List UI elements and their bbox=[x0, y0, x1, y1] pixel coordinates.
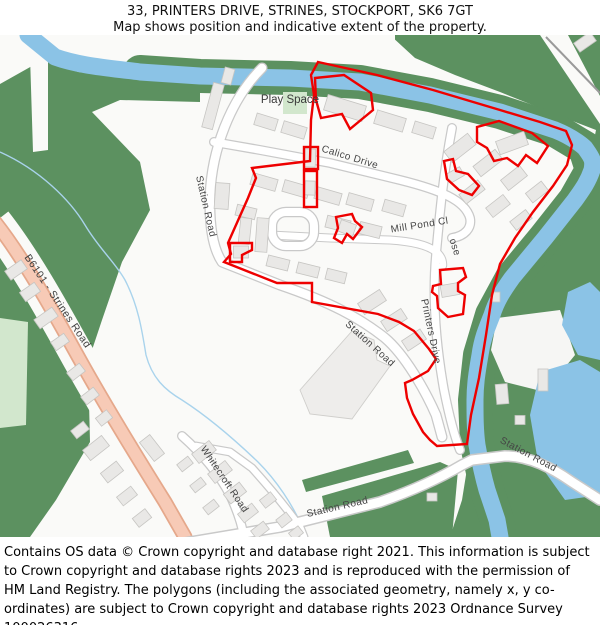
copyright-footer: Contains OS data © Crown copyright and d… bbox=[0, 537, 600, 625]
play-space-label: Play Space bbox=[261, 94, 319, 106]
property-extent-page: 33, PRINTERS DRIVE, STRINES, STOCKPORT, … bbox=[0, 0, 600, 625]
page-title: 33, PRINTERS DRIVE, STRINES, STOCKPORT, … bbox=[0, 0, 600, 19]
map-canvas: Play Space B6101 - Strines Road Station … bbox=[0, 35, 600, 537]
page-subtitle: Map shows position and indicative extent… bbox=[0, 19, 600, 35]
map-title-block: 33, PRINTERS DRIVE, STRINES, STOCKPORT, … bbox=[0, 0, 600, 35]
map: Play Space B6101 - Strines Road Station … bbox=[0, 35, 600, 537]
open-green-area bbox=[0, 318, 28, 428]
